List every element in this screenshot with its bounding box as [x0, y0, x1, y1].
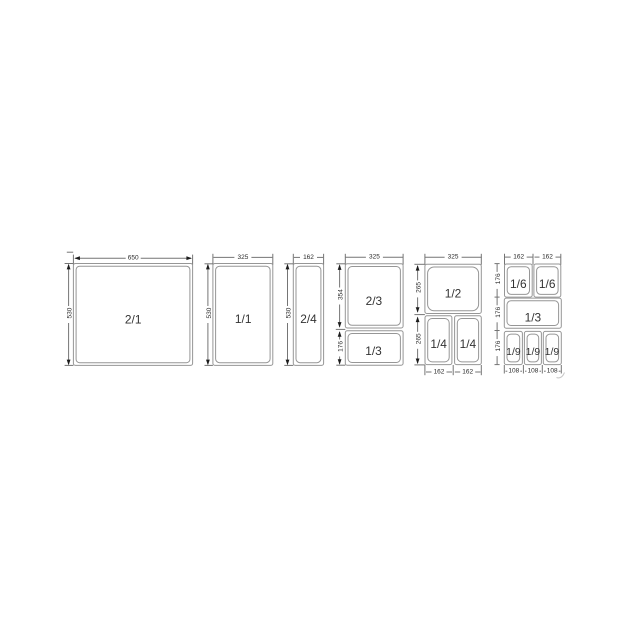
svg-text:2/3: 2/3 [366, 294, 383, 308]
svg-text:1/9: 1/9 [545, 347, 560, 358]
svg-text:1/9: 1/9 [526, 347, 541, 358]
svg-text:265: 265 [416, 333, 423, 344]
svg-text:650: 650 [128, 255, 139, 262]
svg-text:325: 325 [448, 254, 459, 261]
svg-text:1/3: 1/3 [525, 311, 542, 325]
svg-text:1/4: 1/4 [430, 337, 447, 351]
svg-text:162: 162 [462, 369, 473, 376]
svg-text:325: 325 [369, 254, 380, 261]
svg-text:162: 162 [434, 369, 445, 376]
svg-text:530: 530 [206, 307, 213, 318]
svg-text:176: 176 [495, 273, 502, 284]
svg-text:108: 108 [508, 368, 519, 375]
svg-text:162: 162 [542, 254, 553, 261]
svg-text:1/9: 1/9 [506, 347, 521, 358]
svg-text:325: 325 [237, 254, 248, 261]
svg-text:530: 530 [67, 307, 74, 318]
svg-text:108: 108 [547, 368, 558, 375]
svg-text:265: 265 [416, 282, 423, 293]
svg-text:176: 176 [495, 340, 502, 351]
svg-text:176: 176 [338, 341, 345, 352]
svg-text:108: 108 [528, 368, 539, 375]
svg-text:1/3: 1/3 [365, 344, 382, 358]
svg-text:1/1: 1/1 [235, 312, 252, 326]
svg-text:1/6: 1/6 [539, 277, 556, 291]
svg-text:1/2: 1/2 [445, 286, 462, 300]
svg-text:162: 162 [513, 254, 524, 261]
svg-text:2/1: 2/1 [125, 312, 142, 326]
svg-text:162: 162 [303, 254, 314, 261]
svg-text:2/4: 2/4 [300, 312, 317, 326]
svg-text:1/6: 1/6 [510, 277, 527, 291]
svg-text:354: 354 [338, 289, 345, 300]
svg-text:530: 530 [285, 307, 292, 318]
svg-text:1/4: 1/4 [460, 337, 477, 351]
svg-text:176: 176 [495, 306, 502, 317]
